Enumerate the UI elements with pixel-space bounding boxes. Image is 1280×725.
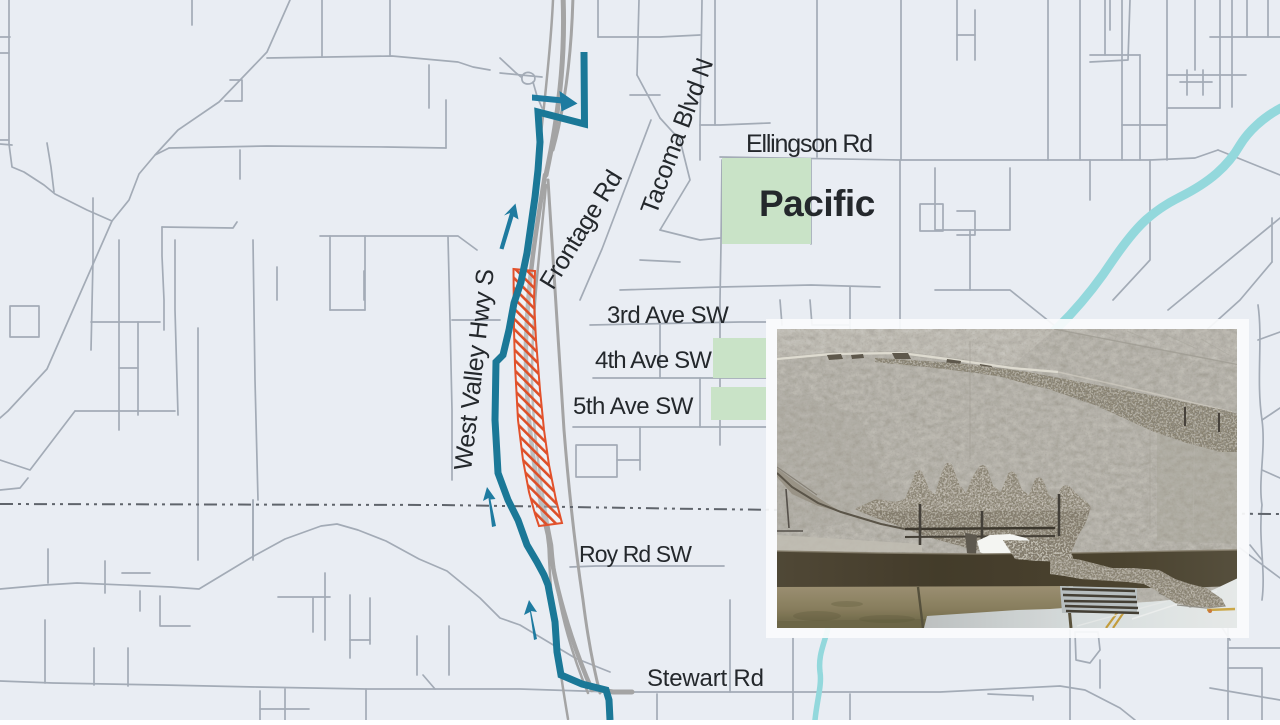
svg-text:5th Ave SW: 5th Ave SW — [573, 393, 694, 420]
svg-text:Ellingson Rd: Ellingson Rd — [746, 130, 872, 158]
svg-text:Stewart Rd: Stewart Rd — [647, 665, 764, 692]
svg-text:3rd Ave SW: 3rd Ave SW — [607, 302, 729, 329]
svg-text:Pacific: Pacific — [759, 183, 875, 224]
svg-text:Roy Rd SW: Roy Rd SW — [579, 541, 692, 567]
svg-text:4th Ave SW: 4th Ave SW — [595, 347, 712, 374]
